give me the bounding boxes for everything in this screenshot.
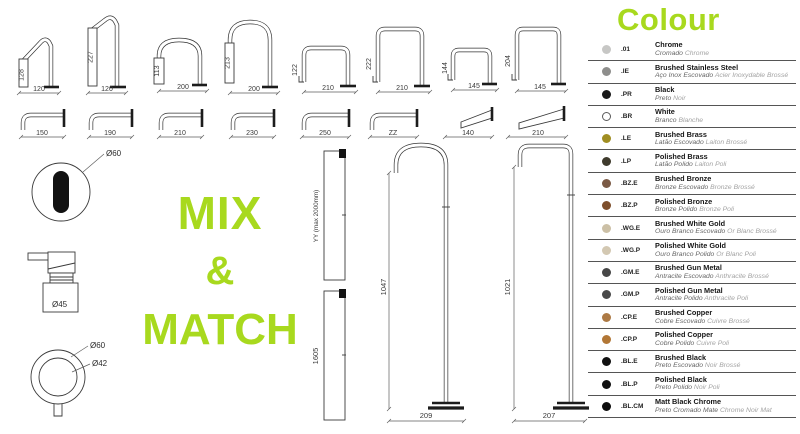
dim-label: 207 xyxy=(543,411,556,420)
dim-label: 113 xyxy=(154,65,161,76)
colour-subtitle: Preto Escovado Noir Brossé xyxy=(655,362,740,371)
dim-label: 150 xyxy=(36,130,48,137)
colour-subtitle: Ouro Branco Polido Or Blanc Poli xyxy=(655,251,756,260)
dim-label: 213 xyxy=(225,57,232,69)
colour-swatch xyxy=(602,45,611,54)
colour-text: Polished CopperCobre Polido Cuivre Poli xyxy=(655,330,729,348)
colour-name: White xyxy=(655,107,703,116)
colour-text: Polished BronzeBronze Polido Bronze Poli xyxy=(655,197,734,215)
colour-swatch xyxy=(602,201,611,210)
colour-subtitle: Ouro Branco Escovado Or Blanc Brossé xyxy=(655,228,777,237)
colour-subtitle: Preto Polido Noir Poli xyxy=(655,384,720,393)
colour-subtitle: Antracite Escovado Anthracite Brossé xyxy=(655,273,769,282)
colour-item: .IEBrushed Stainless SteelAço Inox Escov… xyxy=(588,61,796,83)
ampersand-line: & xyxy=(132,251,308,291)
dim-label: 250 xyxy=(319,130,331,137)
diameter-label: Ø42 xyxy=(92,359,108,368)
dim-label: 204 xyxy=(505,55,512,67)
colour-item: .LEBrushed BrassLatão Escovado Laiton Br… xyxy=(588,128,796,150)
colour-item: .CP.PPolished CopperCobre Polido Cuivre … xyxy=(588,329,796,351)
colour-code: .IE xyxy=(621,68,655,75)
colour-subtitle-pt: Preto Cromado Mate xyxy=(655,407,720,414)
colour-item: .WG.PPolished White GoldOuro Branco Poli… xyxy=(588,240,796,262)
spout-diagram-7: 145 144 xyxy=(444,42,500,96)
colour-subtitle-fr: Cuivre Poli xyxy=(696,340,729,347)
diameter-label: Ø45 xyxy=(52,300,68,309)
colour-code: .CP.E xyxy=(621,314,655,321)
colour-subtitle-pt: Ouro Branco Escovado xyxy=(655,228,727,235)
colour-name: Brushed Gun Metal xyxy=(655,263,769,272)
colour-name: Polished Brass xyxy=(655,152,726,161)
floor-spout-diagram-2: 1021 207 xyxy=(490,137,590,433)
dim-label: 209 xyxy=(420,411,433,420)
colour-subtitle-pt: Antracite Polido xyxy=(655,295,704,302)
catalogue-page: 120 128 120 227 200 113 200 213 210 122 xyxy=(0,0,800,434)
colour-item: .GM.EBrushed Gun MetalAntracite Escovado… xyxy=(588,262,796,284)
colour-subtitle-fr: Chrome Noir Mat xyxy=(720,407,772,414)
colour-subtitle: Latão Polido Laiton Poli xyxy=(655,161,726,170)
colour-text: Brushed BrassLatão Escovado Laiton Bross… xyxy=(655,130,747,148)
colour-subtitle-pt: Antracite Escovado xyxy=(655,273,715,280)
dim-label: ZZ xyxy=(389,130,398,137)
colour-code: .BZ.E xyxy=(621,180,655,187)
colour-code: .BR xyxy=(621,113,655,120)
colour-text: Matt Black ChromePreto Cromado Mate Chro… xyxy=(655,397,772,415)
colour-subtitle-pt: Preto Polido xyxy=(655,384,694,391)
colour-swatch xyxy=(602,357,611,366)
colour-code: .BL.P xyxy=(621,381,655,388)
colour-code: .CP.P xyxy=(621,336,655,343)
colour-name: Brushed Brass xyxy=(655,130,747,139)
colour-text: Brushed BronzeBronze Escovado Bronze Bro… xyxy=(655,174,755,192)
oval-escutcheon-diagram: Ø60 xyxy=(20,140,130,230)
colour-name: Polished Copper xyxy=(655,330,729,339)
colour-subtitle-pt: Cromado xyxy=(655,50,685,57)
spout-diagram-3: 200 113 xyxy=(150,36,210,96)
colour-subtitle-fr: Blanche xyxy=(678,117,703,124)
colour-subtitle-pt: Aço Inox Escovado xyxy=(655,72,715,79)
colour-subtitle: Bronze Escovado Bronze Brossé xyxy=(655,184,755,193)
colour-swatch xyxy=(602,179,611,188)
colour-name: Brushed White Gold xyxy=(655,219,777,228)
colour-subtitle-fr: Anthracite Poli xyxy=(704,295,748,302)
colour-name: Brushed Bronze xyxy=(655,174,755,183)
dim-label: 140 xyxy=(462,130,474,137)
wall-spout-diagram-1: 150 xyxy=(12,106,70,142)
colour-subtitle: Antracite Polido Anthracite Poli xyxy=(655,295,748,304)
colour-title: Colour xyxy=(617,2,720,38)
colour-swatch xyxy=(602,313,611,322)
colour-item: .BZ.PPolished BronzeBronze Polido Bronze… xyxy=(588,195,796,217)
colour-subtitle-fr: Bronze Poli xyxy=(699,206,734,213)
colour-subtitle-fr: Bronze Brossé xyxy=(710,184,755,191)
colour-subtitle-pt: Latão Polido xyxy=(655,161,695,168)
colour-subtitle-fr: Anthracite Brossé xyxy=(715,273,769,280)
wall-spout-diagram-5: 250 xyxy=(293,106,355,142)
colour-subtitle-fr: Acier Inoxydable Brossé xyxy=(715,72,788,79)
spout-diagram-4: 200 213 xyxy=(222,16,282,98)
dim-label: 144 xyxy=(442,62,449,74)
colour-item: .GM.PPolished Gun MetalAntracite Polido … xyxy=(588,284,796,306)
colour-item: .PRBlackPreto Noir xyxy=(588,84,796,106)
colour-text: ChromeCromado Chrome xyxy=(655,40,709,58)
dim-label: 200 xyxy=(177,84,189,91)
colour-subtitle-pt: Preto Escovado xyxy=(655,362,705,369)
colour-code: .GM.E xyxy=(621,269,655,276)
colour-subtitle-pt: Ouro Branco Polido xyxy=(655,251,716,258)
colour-subtitle: Preto Noir xyxy=(655,95,686,104)
colour-text: Brushed CopperCobre Escovado Cuivre Bros… xyxy=(655,308,750,326)
colour-code: .BZ.P xyxy=(621,202,655,209)
colour-swatch xyxy=(602,134,611,143)
colour-item: .CP.EBrushed CopperCobre Escovado Cuivre… xyxy=(588,307,796,329)
dim-label: 145 xyxy=(468,83,480,90)
colour-code: .01 xyxy=(621,46,655,53)
dim-label: 120 xyxy=(101,86,113,93)
colour-subtitle: Latão Escovado Laiton Brossé xyxy=(655,139,747,148)
colour-subtitle-fr: Laiton Brossé xyxy=(706,139,748,146)
dim-label: 222 xyxy=(366,58,373,70)
colour-name: Chrome xyxy=(655,40,709,49)
colour-subtitle-pt: Latão Escovado xyxy=(655,139,706,146)
colour-swatch xyxy=(602,90,611,99)
colour-subtitle-fr: Laiton Poli xyxy=(695,161,727,168)
mix-match-headline: MIX & MATCH xyxy=(132,190,308,352)
colour-subtitle: Branco Blanche xyxy=(655,117,703,126)
match-line: MATCH xyxy=(132,308,308,352)
colour-subtitle-fr: Noir Brossé xyxy=(705,362,741,369)
colour-code: .BL.CM xyxy=(621,403,655,410)
dim-label: 230 xyxy=(246,130,258,137)
colour-subtitle-pt: Bronze Polido xyxy=(655,206,699,213)
colour-item: .BRWhiteBranco Blanche xyxy=(588,106,796,128)
dim-label: 200 xyxy=(248,86,260,93)
colour-subtitle-fr: Noir Poli xyxy=(694,384,720,391)
ceiling-spout-diagram-2: 1605 xyxy=(318,288,352,424)
colour-text: Brushed Gun MetalAntracite Escovado Anth… xyxy=(655,263,769,281)
lever-handle-diagram: Ø45 xyxy=(22,246,94,316)
colour-name: Polished White Gold xyxy=(655,241,756,250)
dim-label: 1047 xyxy=(379,279,388,296)
colour-subtitle: Cobre Escovado Cuivre Brossé xyxy=(655,318,750,327)
colour-text: BlackPreto Noir xyxy=(655,85,686,103)
dim-label: 190 xyxy=(104,130,116,137)
diameter-label: Ø60 xyxy=(90,341,106,350)
dim-label: 210 xyxy=(322,85,334,92)
colour-text: Polished Gun MetalAntracite Polido Anthr… xyxy=(655,286,748,304)
colour-swatch xyxy=(602,380,611,389)
spout-diagram-6: 210 222 xyxy=(368,22,432,96)
colour-code: .GM.P xyxy=(621,291,655,298)
colour-swatch xyxy=(602,268,611,277)
colour-swatch xyxy=(602,290,611,299)
colour-name: Polished Gun Metal xyxy=(655,286,748,295)
dim-label: 210 xyxy=(532,130,544,137)
colour-subtitle-pt: Cobre Polido xyxy=(655,340,696,347)
dim-label: 1605 xyxy=(311,348,320,365)
colour-subtitle: Cobre Polido Cuivre Poli xyxy=(655,340,729,349)
colour-swatch xyxy=(602,246,611,255)
colour-subtitle-fr: Chrome xyxy=(685,50,709,57)
ceiling-spout-diagram-1: YY (max 2000mm) xyxy=(318,148,352,284)
colour-list: .01ChromeCromado Chrome.IEBrushed Stainl… xyxy=(588,39,796,418)
colour-item: .01ChromeCromado Chrome xyxy=(588,39,796,61)
spout-diagram-8: 145 204 xyxy=(506,22,568,96)
colour-text: Brushed White GoldOuro Branco Escovado O… xyxy=(655,219,777,237)
colour-code: .WG.P xyxy=(621,247,655,254)
colour-name: Black xyxy=(655,85,686,94)
colour-swatch xyxy=(602,157,611,166)
dim-label: 1021 xyxy=(503,279,512,296)
colour-subtitle-fr: Cuivre Brossé xyxy=(707,318,750,325)
dim-label: 122 xyxy=(292,64,299,76)
spout-diagram-5: 210 122 xyxy=(294,40,358,96)
dim-label: 210 xyxy=(396,85,408,92)
colour-swatch xyxy=(602,67,611,76)
colour-name: Brushed Copper xyxy=(655,308,750,317)
colour-text: WhiteBranco Blanche xyxy=(655,107,703,125)
colour-subtitle: Bronze Polido Bronze Poli xyxy=(655,206,734,215)
dim-label: 128 xyxy=(19,69,26,81)
ring-handle-diagram: Ø60 Ø42 xyxy=(26,336,110,420)
colour-swatch xyxy=(602,112,611,121)
dim-label: 227 xyxy=(88,51,95,63)
colour-text: Polished BrassLatão Polido Laiton Poli xyxy=(655,152,726,170)
colour-code: .WG.E xyxy=(621,225,655,232)
colour-subtitle: Preto Cromado Mate Chrome Noir Mat xyxy=(655,407,772,416)
wall-spout-diagram-2: 190 xyxy=(80,106,138,142)
colour-name: Brushed Black xyxy=(655,353,740,362)
colour-item: .BZ.EBrushed BronzeBronze Escovado Bronz… xyxy=(588,173,796,195)
wall-spout-diagram-4: 230 xyxy=(222,106,280,142)
wall-spout-diagram-3: 210 xyxy=(150,106,208,142)
colour-name: Polished Bronze xyxy=(655,197,734,206)
dim-label: 145 xyxy=(534,84,546,91)
colour-text: Brushed BlackPreto Escovado Noir Brossé xyxy=(655,353,740,371)
colour-item: .BL.EBrushed BlackPreto Escovado Noir Br… xyxy=(588,351,796,373)
colour-subtitle-pt: Bronze Escovado xyxy=(655,184,710,191)
spout-diagram-1: 120 128 xyxy=(14,34,62,100)
dim-label: YY (max 2000mm) xyxy=(313,190,320,242)
mix-line: MIX xyxy=(132,190,308,236)
colour-subtitle-fr: Or Blanc Poli xyxy=(716,251,756,258)
colour-code: .LP xyxy=(621,158,655,165)
dim-label: 120 xyxy=(33,86,45,93)
colour-name: Polished Black xyxy=(655,375,720,384)
colour-swatch xyxy=(602,402,611,411)
colour-subtitle-pt: Preto xyxy=(655,95,673,102)
colour-subtitle: Cromado Chrome xyxy=(655,50,709,59)
floor-spout-diagram-1: 1047 209 xyxy=(383,137,465,433)
colour-subtitle-pt: Branco xyxy=(655,117,678,124)
colour-name: Matt Black Chrome xyxy=(655,397,772,406)
diameter-label: Ø60 xyxy=(106,149,122,158)
colour-swatch xyxy=(602,224,611,233)
dim-label: 210 xyxy=(174,130,186,137)
colour-subtitle-fr: Noir xyxy=(673,95,685,102)
colour-item: .LPPolished BrassLatão Polido Laiton Pol… xyxy=(588,150,796,172)
colour-subtitle: Aço Inox Escovado Acier Inoxydable Bross… xyxy=(655,72,788,81)
colour-swatch xyxy=(602,335,611,344)
colour-text: Polished White GoldOuro Branco Polido Or… xyxy=(655,241,756,259)
colour-name: Brushed Stainless Steel xyxy=(655,63,788,72)
colour-text: Brushed Stainless SteelAço Inox Escovado… xyxy=(655,63,788,81)
colour-item: .BL.CMMatt Black ChromePreto Cromado Mat… xyxy=(588,396,796,418)
colour-text: Polished BlackPreto Polido Noir Poli xyxy=(655,375,720,393)
colour-code: .PR xyxy=(621,91,655,98)
colour-subtitle-pt: Cobre Escovado xyxy=(655,318,707,325)
spout-diagram-2: 120 227 xyxy=(84,14,132,100)
colour-item: .BL.PPolished BlackPreto Polido Noir Pol… xyxy=(588,373,796,395)
colour-subtitle-fr: Or Blanc Brossé xyxy=(727,228,776,235)
colour-code: .BL.E xyxy=(621,358,655,365)
colour-code: .LE xyxy=(621,135,655,142)
colour-item: .WG.EBrushed White GoldOuro Branco Escov… xyxy=(588,217,796,239)
